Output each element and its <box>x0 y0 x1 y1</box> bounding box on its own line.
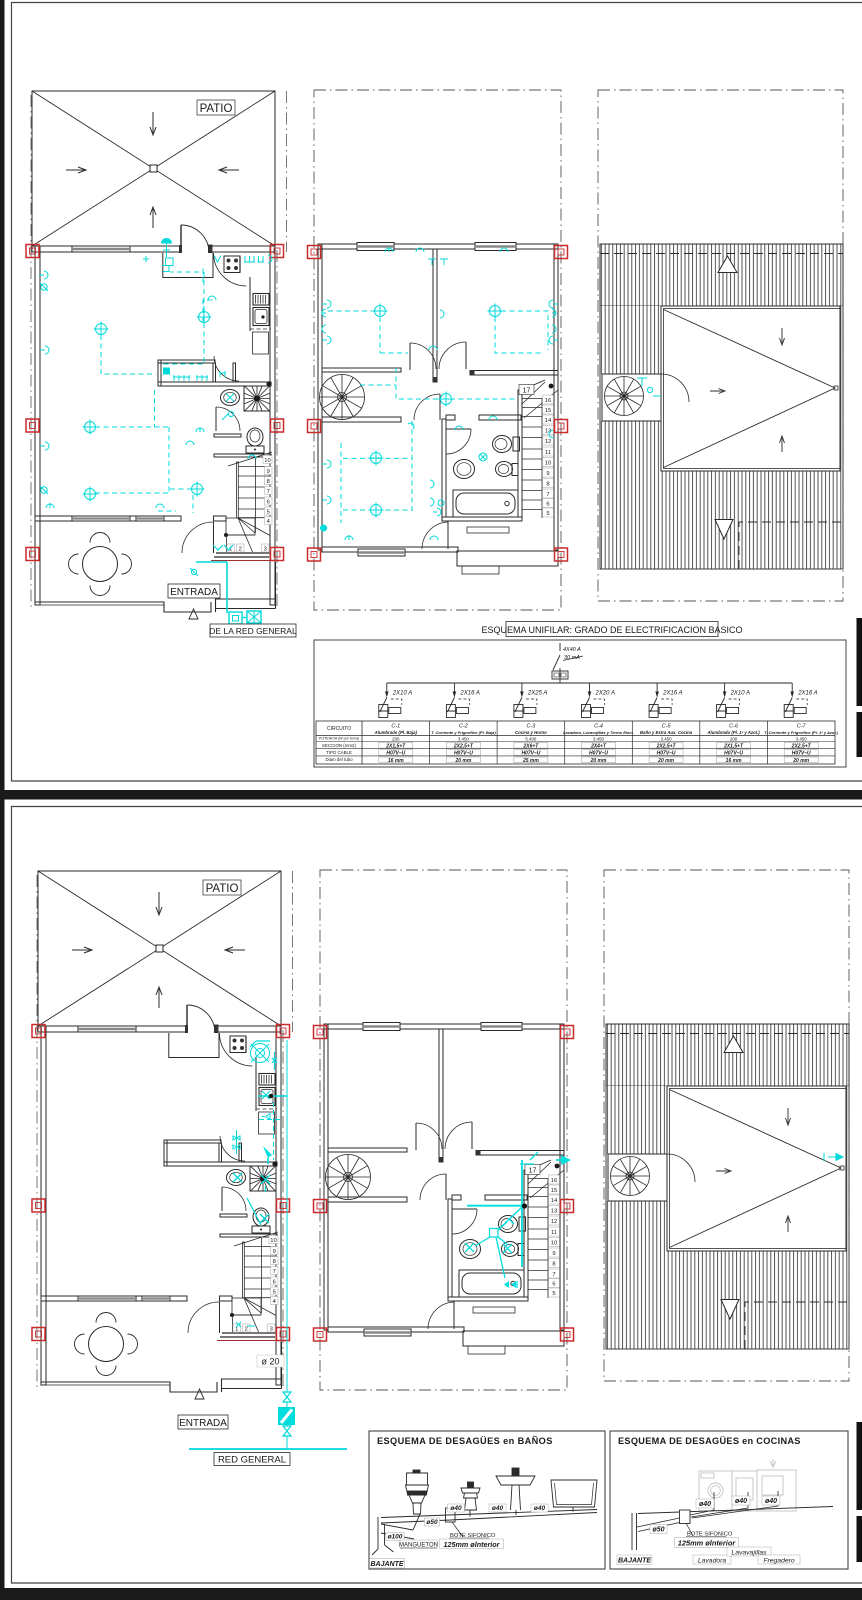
svg-text:H07V–U: H07V–U <box>386 751 405 757</box>
svg-text:16: 16 <box>545 398 551 404</box>
svg-text:ø40: ø40 <box>765 1498 777 1505</box>
svg-text:3.450: 3.450 <box>661 736 673 741</box>
svg-text:H07V–U: H07V–U <box>724 751 743 757</box>
svg-text:2X10 A: 2X10 A <box>392 691 412 697</box>
svg-text:2X2,5+T: 2X2,5+T <box>791 743 812 749</box>
svg-text:16 mm: 16 mm <box>726 758 742 764</box>
svg-text:6: 6 <box>267 500 270 506</box>
svg-text:3.450: 3.450 <box>458 736 470 741</box>
svg-text:2X2,5+T: 2X2,5+T <box>453 743 474 749</box>
svg-text:2X25 A: 2X25 A <box>527 691 547 697</box>
svg-text:3.450: 3.450 <box>796 736 808 741</box>
svg-text:6: 6 <box>546 502 549 508</box>
svg-text:9: 9 <box>546 471 549 477</box>
svg-text:3.450: 3.450 <box>593 736 605 741</box>
svg-text:2X2,5+T: 2X2,5+T <box>656 743 677 749</box>
svg-text:C-7: C-7 <box>797 724 807 730</box>
svg-text:BAJANTE: BAJANTE <box>618 1558 651 1565</box>
svg-text:ø40: ø40 <box>492 1505 504 1512</box>
svg-text:H07V–U: H07V–U <box>657 751 676 757</box>
svg-text:Diam del tubo: Diam del tubo <box>325 757 353 762</box>
svg-text:5.400: 5.400 <box>525 736 537 741</box>
svg-text:2X16 A: 2X16 A <box>459 691 479 697</box>
svg-text:C-3: C-3 <box>526 724 536 730</box>
svg-text:30 mA: 30 mA <box>564 655 580 661</box>
svg-text:2X10 A: 2X10 A <box>730 691 750 697</box>
svg-text:7: 7 <box>267 489 270 495</box>
svg-text:ESQUEMA DE DESAGÜES en COCINAS: ESQUEMA DE DESAGÜES en COCINAS <box>618 1436 801 1446</box>
svg-text:ESQUEMA DE DESAGÜES en BAÑOS: ESQUEMA DE DESAGÜES en BAÑOS <box>377 1436 553 1446</box>
svg-text:2X16 A: 2X16 A <box>797 691 817 697</box>
svg-text:ø50: ø50 <box>652 1527 664 1534</box>
svg-text:DE LA RED GENERAL: DE LA RED GENERAL <box>209 626 297 636</box>
svg-text:MANGUETON: MANGUETON <box>399 1543 438 1549</box>
svg-text:PATIO: PATIO <box>200 103 233 115</box>
svg-text:C-5: C-5 <box>662 724 672 730</box>
svg-text:8: 8 <box>546 482 549 488</box>
svg-text:ø100: ø100 <box>388 1534 403 1541</box>
svg-text:Lavadora: Lavadora <box>698 1557 727 1564</box>
svg-text:25 mm: 25 mm <box>522 758 539 764</box>
svg-text:17: 17 <box>523 388 531 395</box>
svg-text:5: 5 <box>546 511 549 517</box>
svg-text:15: 15 <box>545 408 551 414</box>
svg-text:Alumbrado (Pl. Baja): Alumbrado (Pl. Baja) <box>374 730 418 735</box>
svg-text:POTENCIA (W por toma): POTENCIA (W por toma) <box>319 737 359 741</box>
svg-text:SECCION (mm2): SECCION (mm2) <box>322 743 356 748</box>
svg-text:7: 7 <box>546 492 549 498</box>
svg-text:9: 9 <box>267 469 270 475</box>
svg-text:2X1,5+T: 2X1,5+T <box>385 743 406 749</box>
svg-text:C-1: C-1 <box>391 724 400 730</box>
svg-text:ø40: ø40 <box>534 1505 546 1512</box>
svg-text:ø40: ø40 <box>699 1501 711 1508</box>
svg-text:5: 5 <box>267 510 270 516</box>
svg-text:2X4+T: 2X4+T <box>590 743 607 749</box>
svg-text:Fregadero: Fregadero <box>763 1557 795 1564</box>
svg-text:H07V–U: H07V–U <box>454 751 473 757</box>
svg-text:Lavadora, Lavavajillas y Termo: Lavadora, Lavavajillas y Termo Elect. <box>563 730 634 735</box>
svg-text:125mm ølnterior: 125mm ølnterior <box>678 1539 737 1548</box>
svg-text:200: 200 <box>730 736 738 741</box>
svg-text:ESQUEMA UNIFILAR: GRADO DE: ESQUEMA UNIFILAR: GRADO DE ELECTRIFICACI… <box>481 625 742 635</box>
svg-text:ENTRADA: ENTRADA <box>170 587 218 598</box>
svg-text:T. Corriente y Frigorífico (Pl: T. Corriente y Frigorífico (Pl. Baja) <box>431 730 496 735</box>
svg-text:ø 20: ø 20 <box>261 1357 279 1367</box>
svg-text:2X16 A: 2X16 A <box>662 691 682 697</box>
svg-text:Baño y Extra Aux. Cocina: Baño y Extra Aux. Cocina <box>640 730 693 735</box>
svg-text:C-2: C-2 <box>459 724 468 730</box>
svg-text:20 mm: 20 mm <box>657 758 674 764</box>
svg-text:2X20 A: 2X20 A <box>595 691 615 697</box>
svg-text:BAJANTE: BAJANTE <box>370 1561 403 1568</box>
svg-text:8: 8 <box>267 479 270 485</box>
svg-text:3: 3 <box>264 547 267 553</box>
svg-text:11: 11 <box>545 450 551 456</box>
svg-text:20 mm: 20 mm <box>792 758 809 764</box>
svg-text:C-4: C-4 <box>594 724 603 730</box>
svg-text:20 mm: 20 mm <box>590 758 607 764</box>
svg-text:4X40 A: 4X40 A <box>563 647 581 653</box>
svg-text:20 mm: 20 mm <box>454 758 471 764</box>
svg-text:2: 2 <box>239 547 242 553</box>
svg-text:H07V–U: H07V–U <box>589 751 608 757</box>
svg-text:200: 200 <box>392 736 400 741</box>
svg-text:CIRCUITO: CIRCUITO <box>327 726 351 732</box>
svg-text:ø40: ø40 <box>450 1505 462 1512</box>
svg-text:T. Corriente y Frigorífico (Pl: T. Corriente y Frigorífico (Pl. 1ª y Azo… <box>764 730 839 735</box>
svg-text:ø50: ø50 <box>426 1519 438 1526</box>
svg-text:C-6: C-6 <box>729 724 739 730</box>
svg-text:ø40: ø40 <box>735 1498 747 1505</box>
svg-text:Cocina y Horno: Cocina y Horno <box>515 730 547 735</box>
svg-text:14: 14 <box>545 418 552 424</box>
svg-text:Alumbrado (Pl. 1ª y Azot.): Alumbrado (Pl. 1ª y Azot.) <box>706 730 760 735</box>
svg-text:RED GENERAL: RED GENERAL <box>218 1455 286 1466</box>
svg-text:H07V–U: H07V–U <box>521 751 540 757</box>
svg-text:2X1,5+T: 2X1,5+T <box>723 743 744 749</box>
svg-text:125mm ølnterior: 125mm ølnterior <box>444 1540 501 1549</box>
svg-text:16 mm: 16 mm <box>388 758 404 764</box>
svg-text:2X6+T: 2X6+T <box>522 743 539 749</box>
svg-text:ENTRADA: ENTRADA <box>179 1418 227 1429</box>
svg-text:TIPO CABLE: TIPO CABLE <box>326 750 352 755</box>
svg-text:10: 10 <box>264 458 270 464</box>
svg-text:H07V–U: H07V–U <box>792 751 811 757</box>
svg-text:10: 10 <box>545 461 551 467</box>
svg-text:12: 12 <box>545 439 551 445</box>
